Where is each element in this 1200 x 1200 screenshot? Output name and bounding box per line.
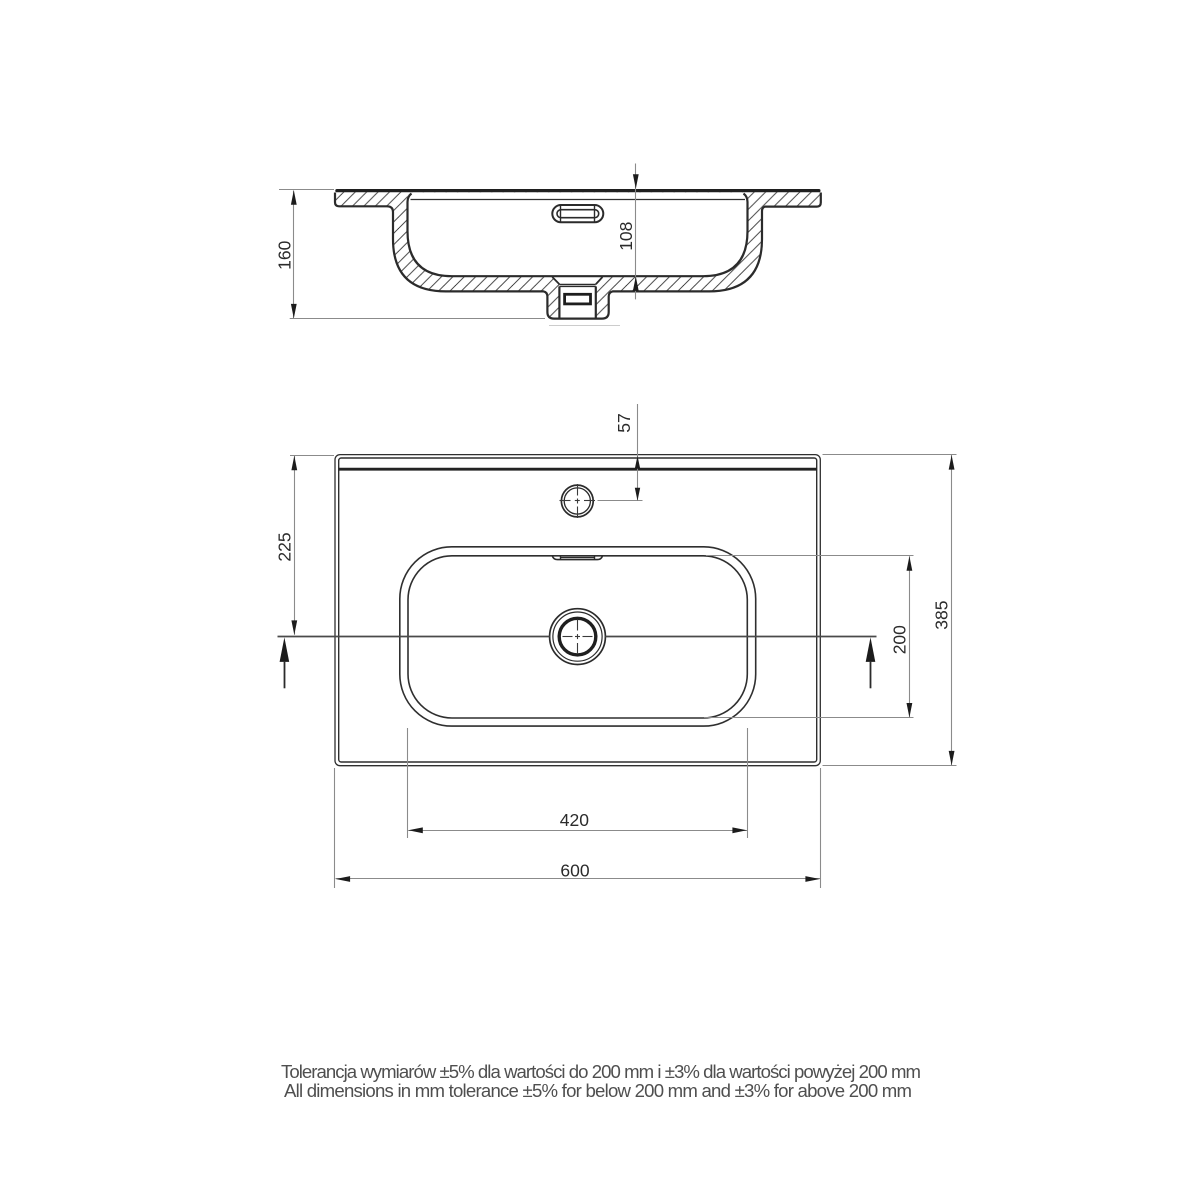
svg-text:108: 108 — [616, 222, 636, 251]
svg-text:57: 57 — [614, 413, 634, 432]
svg-text:160: 160 — [274, 240, 294, 269]
svg-text:200: 200 — [890, 625, 910, 654]
svg-text:385: 385 — [932, 600, 952, 629]
svg-text:420: 420 — [560, 810, 589, 830]
svg-text:600: 600 — [560, 861, 589, 881]
svg-text:225: 225 — [275, 532, 295, 561]
svg-text:All dimensions in mm tolerance: All dimensions in mm tolerance ±5% for b… — [284, 1080, 912, 1101]
svg-text:Tolerancja wymiarów ±5% dla wa: Tolerancja wymiarów ±5% dla wartości do … — [281, 1061, 921, 1082]
